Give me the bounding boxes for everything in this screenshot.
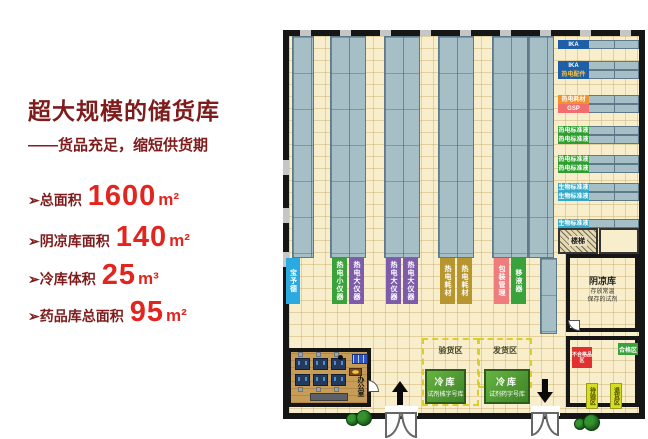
rack-chip: 热电耗材 <box>457 258 472 304</box>
spec-cool-area: ➢阴凉库面积 140 m² <box>28 221 190 254</box>
cool-room-desc-line1: 存放常温 <box>570 289 635 297</box>
rack-column <box>438 36 474 258</box>
office-door <box>368 380 379 392</box>
rack-row-chip: 热电标准液 <box>558 126 589 135</box>
spec-value: 95 <box>130 296 164 329</box>
cool-room-name: 阴凉库 <box>570 274 635 287</box>
rack-row-chip: 生物标准液 <box>558 192 589 201</box>
spec-label: ➢药品库总面积 <box>28 306 124 326</box>
inspection-zone-label: 验货区 <box>424 345 477 356</box>
office-side-table <box>349 368 362 376</box>
bush-plant <box>346 410 372 428</box>
cold-room-name: 冷库 <box>496 375 518 388</box>
office-desk <box>331 374 346 386</box>
inbound-arrow-icon <box>392 381 408 405</box>
rack-row-chip: 热电标准液 <box>558 135 589 144</box>
rack-column <box>384 36 420 258</box>
exit-door-leaf <box>545 412 559 436</box>
rack-chip: 热电大仪器 <box>386 258 401 304</box>
office-desk <box>331 358 346 370</box>
cold-room-name: 冷库 <box>434 375 456 388</box>
warehouse-floorplan: 宝予德 热电小仪器 热电大仪器 热电大仪器 热电大仪器 热电耗材 热电耗材 包装… <box>283 30 645 419</box>
office-chair <box>316 352 321 357</box>
spec-cold-volume: ➢冷库体积 25 m³ <box>28 259 159 292</box>
rack-chip: 热电小仪器 <box>332 258 347 304</box>
pass-zone-chip: 合格区 <box>618 343 638 355</box>
office-chair <box>298 387 303 392</box>
rack-chip: 包装管理 <box>494 258 509 304</box>
office-room: 办公室 <box>287 348 371 407</box>
cold-room-drug: 冷库 试剂药字号库 <box>484 369 530 404</box>
rack-column <box>492 36 528 258</box>
awaiting-inspection-chip: 待验区 <box>586 383 598 409</box>
office-plant-dot <box>338 355 343 360</box>
bush-plant <box>574 414 602 432</box>
office-sofa <box>352 354 368 364</box>
rack-chip: 移液器 <box>511 258 526 304</box>
left-wall-window <box>283 160 289 175</box>
spec-value: 1600 <box>88 180 157 213</box>
rack-row-chip: 生物标准液 <box>558 183 589 192</box>
office-desk <box>313 374 328 386</box>
rack-row-chip: 热电配件 <box>558 70 589 79</box>
stair-landing <box>599 228 639 254</box>
rack-chip: 热电耗材 <box>440 258 455 304</box>
rack-column <box>528 36 554 258</box>
rack-row-chip: GSP <box>558 104 589 113</box>
stairs-label: 楼梯 <box>569 236 587 246</box>
spec-unit: m² <box>169 231 190 251</box>
spec-label: ➢总面积 <box>28 190 82 210</box>
cold-room-desc: 试剂药字号库 <box>489 389 525 398</box>
reject-zone-chip: 不合格品区 <box>572 347 592 368</box>
spec-label: ➢冷库体积 <box>28 269 96 289</box>
spec-unit: m³ <box>138 269 159 289</box>
office-desk <box>313 358 328 370</box>
office-desk <box>295 374 310 386</box>
rack-column <box>292 36 314 258</box>
infographic-canvas: 超大规模的储货库 ——货品充足，缩短供货期 ➢总面积 1600 m² ➢阴凉库面… <box>0 0 648 439</box>
office-chair <box>316 387 321 392</box>
rack-column <box>330 36 366 258</box>
stairs: 楼梯 <box>558 228 598 254</box>
office-chair <box>298 352 303 357</box>
shipping-zone-label: 发货区 <box>480 345 530 356</box>
cold-room-desc: 试剂械字号库 <box>427 389 463 398</box>
rack-chip: 宝予德 <box>286 258 300 304</box>
rack-row-chip: 热电标准液 <box>558 164 589 173</box>
office-mat <box>310 393 348 401</box>
office-desk <box>295 358 310 370</box>
spec-unit: m² <box>158 190 179 210</box>
rack-row-chip: 热电耗材 <box>558 95 589 104</box>
left-wall-window <box>283 208 289 223</box>
cool-room-desc-line2: 保存的试剂 <box>570 297 635 305</box>
rack-row-chip: IKA <box>558 40 589 49</box>
rack-chip: 热电大仪器 <box>403 258 418 304</box>
page-subtitle: ——货品充足，缩短供货期 <box>28 134 208 155</box>
rack-chip: 热电大仪器 <box>349 258 364 304</box>
top-wall-windows <box>300 30 639 36</box>
office-label: 办公室 <box>357 376 364 397</box>
spec-drug-area: ➢药品库总面积 95 m² <box>28 296 187 329</box>
spec-value: 140 <box>116 221 167 254</box>
rack-row-chip: 生物标准液 <box>558 219 589 228</box>
page-title: 超大规模的储货库 <box>28 92 220 126</box>
entry-door-leaf <box>385 412 401 438</box>
rack-row-chip: IKA <box>558 61 589 70</box>
exit-door-leaf <box>531 412 545 436</box>
rack-column <box>540 258 557 334</box>
office-chair <box>334 387 339 392</box>
cold-room-device: 冷库 试剂械字号库 <box>425 369 466 404</box>
spec-unit: m² <box>166 306 187 326</box>
entry-door-leaf <box>401 412 417 438</box>
spec-label: ➢阴凉库面积 <box>28 231 110 251</box>
rack-row-chip: 热电标准液 <box>558 155 589 164</box>
returns-zone-chip: 退货区 <box>610 383 622 409</box>
spec-value: 25 <box>102 259 136 292</box>
outbound-arrow-icon <box>537 379 553 403</box>
spec-total-area: ➢总面积 1600 m² <box>28 180 179 213</box>
